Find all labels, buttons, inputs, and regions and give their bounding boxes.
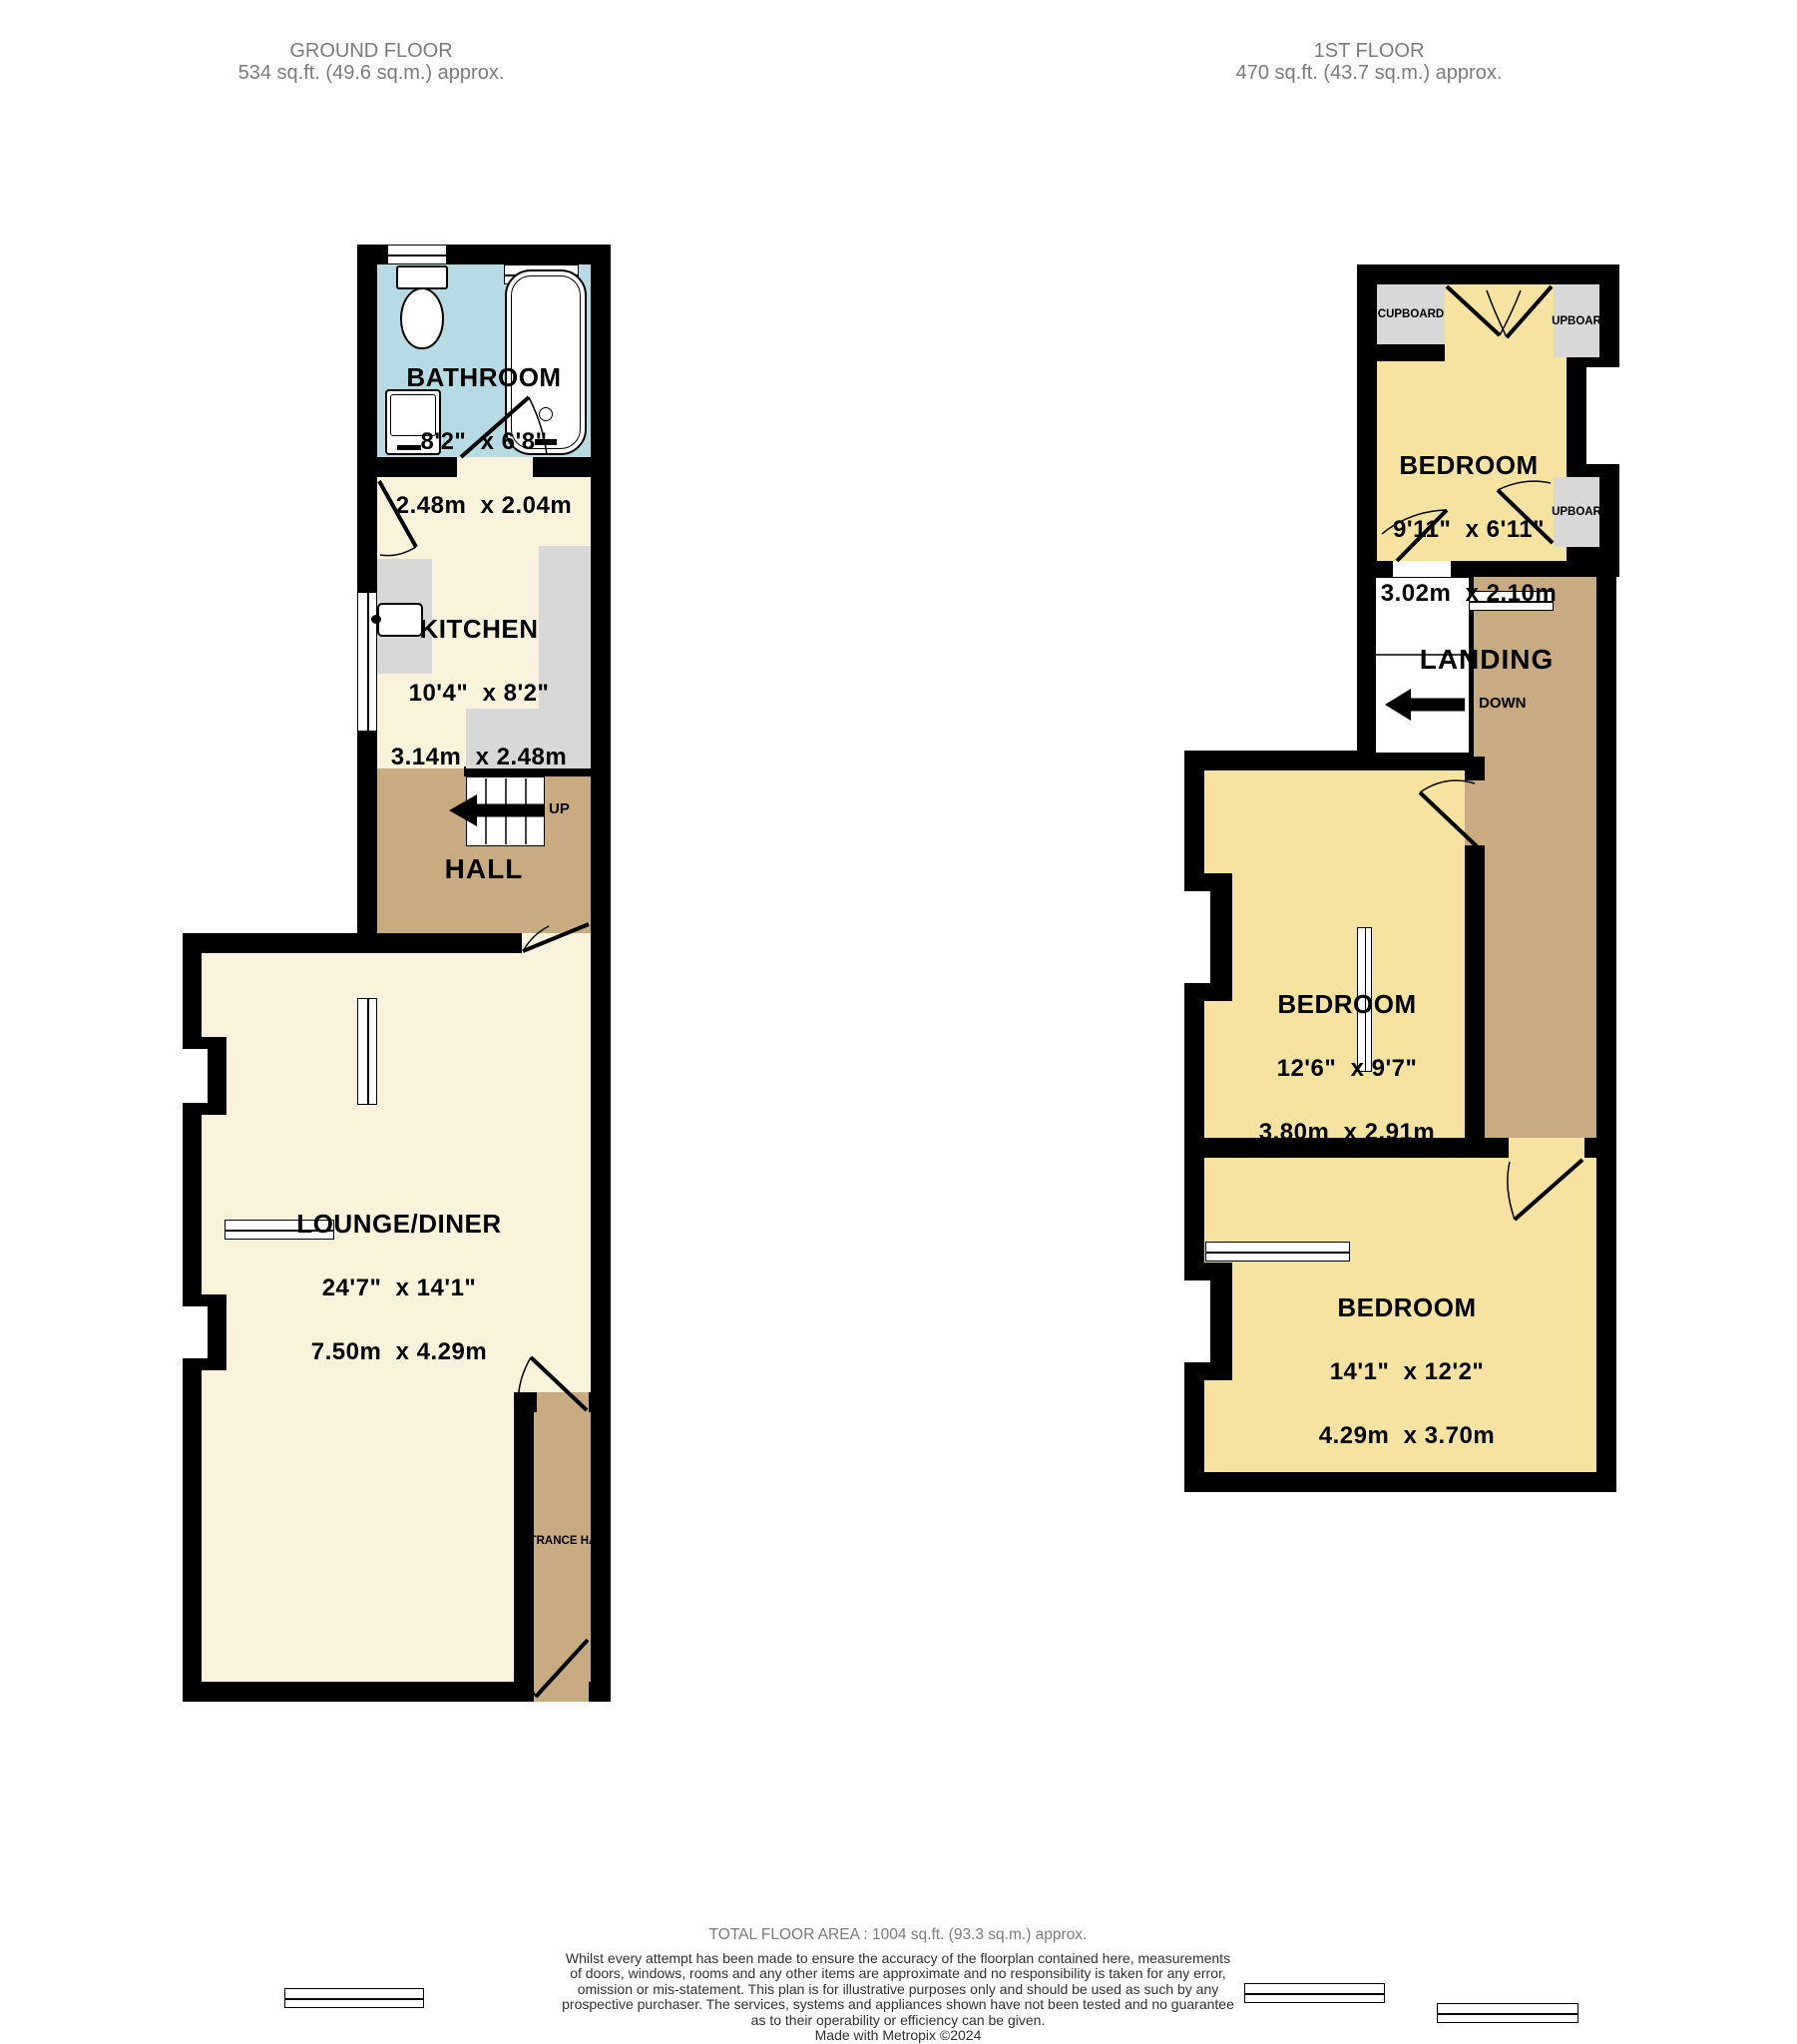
first-floor-title: 1ST FLOOR 470 sq.ft. (43.7 sq.m.) approx…: [1070, 40, 1668, 84]
kitchen-dims-metric: 3.14m x 2.48m: [359, 744, 599, 771]
floorplan-canvas: GROUND FLOOR 534 sq.ft. (49.6 sq.m.) app…: [0, 0, 1797, 2044]
disclaimer-line: Whilst every attempt has been made to en…: [399, 1951, 1397, 1966]
bathroom-name: BATHROOM: [364, 363, 604, 392]
bedroom-large-name: BEDROOM: [1287, 1293, 1527, 1322]
bathroom-label: BATHROOM 8'2" x 6'8" 2.48m x 2.04m: [364, 327, 604, 556]
hall-label: HALL: [394, 854, 574, 884]
lounge-name: LOUNGE/DINER: [205, 1210, 594, 1239]
stairs-down-label: DOWN: [1479, 695, 1549, 717]
bedroom-middle-name: BEDROOM: [1227, 990, 1467, 1019]
wall: [1377, 344, 1445, 361]
ground-floor-title-name: GROUND FLOOR: [72, 40, 671, 62]
wall: [514, 1392, 534, 1682]
wall-recess: [1184, 891, 1210, 983]
wall-recess: [183, 1049, 208, 1103]
first-floor-title-name: 1ST FLOOR: [1070, 40, 1668, 62]
cupboard-top-left-label: CUPBOARD: [1377, 284, 1445, 344]
bedroom-middle-door-opening: [1465, 780, 1485, 845]
window: [387, 245, 447, 264]
hall-lounge-door-opening: [522, 933, 591, 953]
kitchen-name: KITCHEN: [359, 615, 599, 644]
bedroom-large-dims-imperial: 14'1" x 12'2": [1287, 1358, 1527, 1386]
bedroom-large-door-opening: [1509, 1138, 1584, 1158]
lounge-dims-imperial: 24'7" x 14'1": [205, 1275, 594, 1302]
first-floor-title-area: 470 sq.ft. (43.7 sq.m.) approx.: [1070, 62, 1668, 84]
toilet-cistern-icon: [396, 265, 448, 289]
bedroom-large-dims-metric: 4.29m x 3.70m: [1287, 1422, 1527, 1450]
landing-corridor-room: [1485, 757, 1596, 1138]
disclaimer-line: as to their operability or efficiency ca…: [399, 2013, 1397, 2028]
bedroom-middle-dims-imperial: 12'6" x 9'7": [1227, 1055, 1467, 1083]
bathroom-dims-metric: 2.48m x 2.04m: [364, 492, 604, 520]
window: [1437, 2003, 1578, 2023]
bedroom-middle-dims-metric: 3.80m x 2.91m: [1227, 1119, 1467, 1147]
metropix-credit: Made with Metropix ©2024: [399, 2028, 1397, 2043]
disclaimer-line: omission or mis-statement. This plan is …: [399, 1982, 1397, 1997]
ground-floor-title-area: 534 sq.ft. (49.6 sq.m.) approx.: [72, 62, 671, 84]
disclaimer-line: of doors, windows, rooms and any other i…: [399, 1966, 1397, 1981]
bedroom-large-label: BEDROOM 14'1" x 12'2" 4.29m x 3.70m: [1287, 1258, 1527, 1486]
kitchen-label: KITCHEN 10'4" x 8'2" 3.14m x 2.48m: [359, 579, 599, 807]
landing-label: LANDING: [1397, 645, 1576, 675]
kitchen-dims-imperial: 10'4" x 8'2": [359, 680, 599, 708]
lounge-dims-metric: 7.50m x 4.29m: [205, 1338, 594, 1366]
disclaimer: Whilst every attempt has been made to en…: [399, 1951, 1397, 2043]
entrance-hall-label: ENTRANCE HALL: [534, 1529, 591, 1553]
bedroom-middle-label: BEDROOM 12'6" x 9'7" 3.80m x 2.91m: [1227, 954, 1467, 1183]
lounge-diner-label: LOUNGE/DINER 24'7" x 14'1" 7.50m x 4.29m: [205, 1174, 594, 1402]
front-door-opening: [534, 1682, 589, 1702]
ground-floor-title: GROUND FLOOR 534 sq.ft. (49.6 sq.m.) app…: [72, 40, 671, 84]
cupboard-top-right-label: CUPBOARD: [1552, 284, 1601, 357]
bedroom-small-dims-metric: 3.02m x 2.10m: [1359, 580, 1578, 608]
total-floor-area: TOTAL FLOOR AREA : 1004 sq.ft. (93.3 sq.…: [449, 1926, 1347, 1944]
bathroom-dims-imperial: 8'2" x 6'8": [364, 428, 604, 456]
disclaimer-line: prospective purchaser. The services, sys…: [399, 1997, 1397, 2012]
wall-recess: [1184, 1280, 1210, 1362]
bedroom-small-label: BEDROOM 9'11" x 6'11" 3.02m x 2.10m: [1359, 415, 1578, 644]
window: [357, 998, 377, 1105]
bedroom-small-name: BEDROOM: [1359, 451, 1578, 480]
bedroom-small-dims-imperial: 9'11" x 6'11": [1359, 516, 1578, 544]
